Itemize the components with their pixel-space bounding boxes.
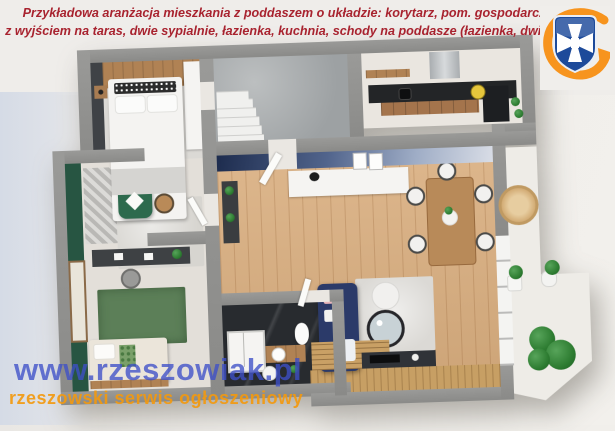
- framed-art: [353, 152, 368, 169]
- staircase-to-attic: [216, 90, 264, 144]
- patterned-pillow-strip: [114, 81, 176, 94]
- bedroom-2-green-rug: [97, 287, 187, 346]
- kitchen-sink: [398, 88, 411, 100]
- framed-art: [369, 153, 384, 170]
- potted-plant: [544, 260, 560, 276]
- header-line-1: Przykładowa aranżacja mieszkania z podda…: [0, 4, 615, 22]
- wall-bedroom-divider: [147, 231, 205, 246]
- watermark-site-url: www.rzeszowiak.pl: [14, 352, 302, 388]
- header-line-2: z wyjściem na taras, dwie sypialnie, łaz…: [0, 22, 615, 40]
- stair-step: [217, 107, 256, 117]
- range-hood: [429, 51, 460, 79]
- tv-flat: [370, 354, 400, 363]
- watermark-tagline: rzeszowski serwis ogłoszeniowy: [9, 388, 303, 409]
- wall-east-lower: [500, 363, 514, 399]
- desk-papers: [114, 253, 123, 260]
- gray-throw-blanket: [111, 167, 186, 196]
- wall-stairs-kitchen: [347, 54, 364, 141]
- stair-step: [216, 90, 248, 100]
- kitchen-shelf: [366, 69, 410, 79]
- fridge-oven-column: [482, 85, 509, 122]
- stair-step: [218, 125, 262, 136]
- pillow: [114, 95, 146, 114]
- pillow: [146, 94, 178, 113]
- bedroom-2-window: [68, 260, 88, 343]
- stair-step: [217, 116, 259, 126]
- doorway-bedroom-1: [200, 82, 215, 110]
- wall-east-kitchen: [520, 35, 536, 135]
- sideboard: [288, 167, 409, 197]
- toilet: [294, 323, 309, 345]
- desk-papers: [144, 253, 153, 260]
- rzeszowiak-logo: [540, 6, 610, 90]
